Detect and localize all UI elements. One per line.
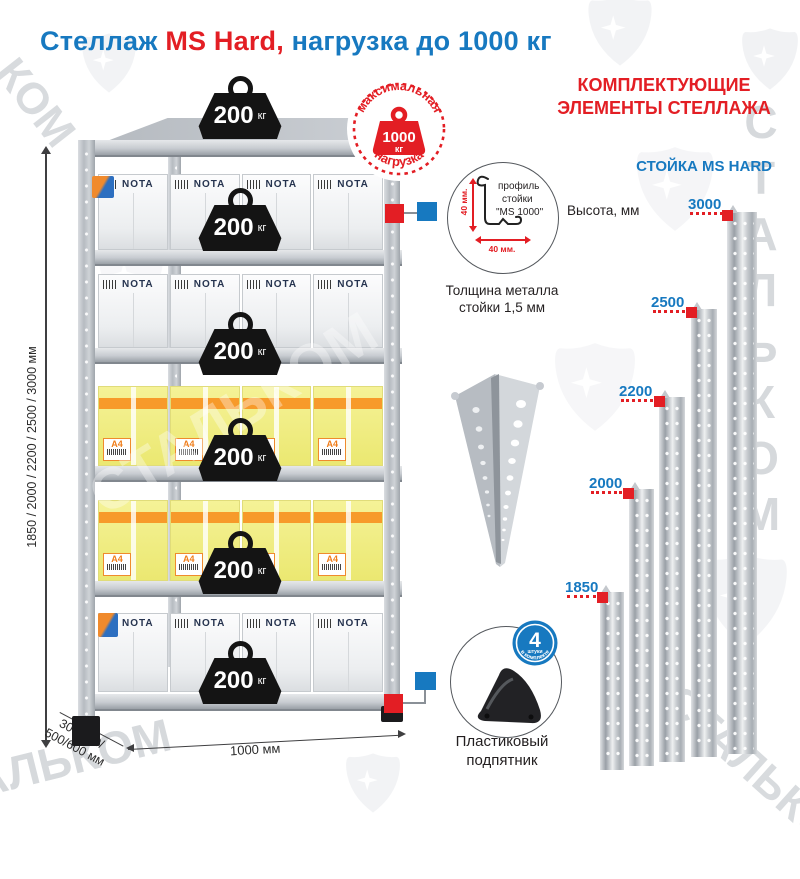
paper-box: NOTA: [313, 274, 383, 348]
post-marker-3000: [722, 210, 733, 221]
shield-watermark-icon: [634, 140, 716, 238]
box-brand-label: NOTA: [266, 279, 298, 290]
profile-caption-line1: профиль: [498, 181, 539, 192]
profile-thickness-caption: Толщина металла стойки 1,5 мм: [432, 282, 572, 316]
paper-box: NOTA: [98, 274, 168, 348]
box-brand-label: NOTA: [122, 279, 154, 290]
barcode-icon: [175, 180, 190, 189]
stand-post-2200: [659, 397, 685, 762]
page-title: Стеллаж MS Hard, нагрузка до 1000 кг: [40, 26, 552, 57]
barcode-icon: [322, 449, 342, 455]
callout-marker-blue-bottom: [415, 672, 436, 690]
box-brand-label: NOTA: [194, 279, 226, 290]
arrow-left-icon: [126, 744, 134, 752]
post-marker-2000: [623, 488, 634, 499]
a4-label: A4: [318, 553, 346, 576]
height-dimension-label: 1850 / 2000 / 2200 / 2500 / 3000 мм: [25, 297, 39, 597]
strap: [131, 387, 136, 465]
arrow-down-icon: [469, 226, 477, 232]
dotted-leader-3000: [690, 212, 723, 215]
count-badge: 4 штуки в комплекте: [512, 620, 558, 666]
paper-box: NOTA: [313, 174, 383, 250]
dotted-leader-1850: [567, 595, 596, 598]
weight-200kg: 200кг: [196, 531, 284, 594]
stand-post-1850: [600, 592, 624, 770]
barcode-icon: [318, 280, 333, 289]
callout-line-bottom-v: [424, 690, 426, 704]
watermark-kom-topleft: КОМ: [0, 49, 85, 157]
arrow-up-icon: [469, 178, 477, 184]
profile-dim-horizontal-label: 40 мм.: [482, 244, 522, 254]
post-3d-image: [443, 348, 558, 573]
a4-label: A4: [318, 438, 346, 461]
rack-post-front-right: [384, 138, 400, 712]
profile-caption-line2: стойки: [502, 194, 533, 205]
box-brand-label: NOTA: [122, 179, 154, 190]
arrow-right-icon: [525, 236, 531, 244]
callout-line-top: [403, 212, 418, 214]
barcode-icon: [107, 564, 127, 570]
box-brand-label: NOTA: [266, 618, 298, 629]
height-axis-label: Высота, мм: [567, 203, 639, 218]
stand-post-2500: [691, 309, 717, 757]
profile-caption-line3: "MS 1000": [496, 207, 543, 218]
title-part-1: Стеллаж: [40, 26, 158, 56]
profile-dim-vertical-arrow: [472, 181, 474, 227]
arrow-up-icon: [41, 146, 51, 154]
paper-pack-yellow: A4: [98, 500, 168, 581]
barcode-icon: [175, 280, 190, 289]
post-height-label-2000: 2000: [589, 475, 622, 492]
rack-post-front-left: [78, 140, 95, 742]
callout-line-bottom-h: [403, 702, 426, 704]
max-load-badge: максимальная нагрузка 1000 кг: [346, 76, 452, 182]
shield-watermark-icon: [344, 748, 402, 818]
strap: [131, 501, 136, 580]
dotted-leader-2500: [653, 310, 685, 313]
paper-box: NOTA: [313, 613, 383, 692]
arrow-left-icon: [475, 236, 481, 244]
weight-200kg: 200кг: [196, 188, 284, 251]
callout-marker-red-top: [385, 204, 404, 223]
count-badge-word: штуки: [527, 649, 542, 655]
badge-unit: кг: [395, 144, 404, 154]
box-brand-label: NOTA: [337, 618, 369, 629]
dotted-leader-2200: [621, 399, 653, 402]
box-brand-label: NOTA: [337, 279, 369, 290]
strap: [346, 501, 351, 580]
post-marker-1850: [597, 592, 608, 603]
profile-detail-circle: 40 мм. профиль стойки "MS 1000" 40 мм.: [447, 162, 559, 274]
title-part-2: MS Hard,: [165, 26, 284, 56]
arrow-right-icon: [398, 730, 406, 738]
a4-label: A4: [103, 438, 131, 461]
barcode-icon: [322, 564, 342, 570]
weight-200kg: 200кг: [196, 312, 284, 375]
stand-post-3000: [727, 212, 757, 754]
post-marker-2200: [654, 396, 665, 407]
post-marker-2500: [686, 307, 697, 318]
width-dimension-label: 1000 мм: [230, 741, 281, 759]
post-height-label-1850: 1850: [565, 579, 598, 596]
height-dimension-line: [45, 150, 47, 744]
paper-pack-yellow: A4: [98, 386, 168, 466]
box-side-sticker: [92, 176, 114, 198]
profile-dim-vertical-label: 40 мм.: [459, 182, 469, 222]
barcode-icon: [247, 280, 262, 289]
rack-foot-left: [72, 716, 100, 746]
box-side-sticker: [98, 613, 118, 637]
barcode-icon: [103, 280, 118, 289]
profile-dim-horizontal-arrow: [478, 239, 526, 241]
stand-subheading: СТОЙКА MS HARD: [600, 158, 772, 175]
stand-post-2000: [629, 489, 654, 766]
foot-caption: Пластиковый подпятник: [432, 732, 572, 770]
barcode-icon: [318, 619, 333, 628]
weight-200kg: 200кг: [196, 641, 284, 704]
dotted-leader-2000: [591, 491, 622, 494]
callout-marker-red-bottom: [384, 694, 403, 713]
title-part-3: нагрузка до 1000 кг: [292, 26, 552, 56]
barcode-icon: [247, 619, 262, 628]
post-height-label-2500: 2500: [651, 294, 684, 311]
weight-200kg: 200кг: [196, 418, 284, 481]
barcode-icon: [175, 619, 190, 628]
post-height-label-2200: 2200: [619, 383, 652, 400]
a4-label: A4: [103, 553, 131, 576]
box-brand-label: NOTA: [194, 618, 226, 629]
barcode-icon: [107, 449, 127, 455]
shield-watermark-icon: [586, 0, 654, 72]
paper-pack-yellow: A4: [313, 386, 383, 466]
callout-marker-blue-top: [417, 202, 437, 221]
weight-200kg: 200кг: [196, 76, 284, 139]
components-heading: КОМПЛЕКТУЮЩИЕ ЭЛЕМЕНТЫ СТЕЛЛАЖА: [540, 74, 788, 120]
barcode-icon: [318, 180, 333, 189]
paper-pack-yellow: A4: [313, 500, 383, 581]
box-brand-label: NOTA: [122, 618, 154, 629]
shelf-edge-2: [84, 250, 402, 266]
strap: [346, 387, 351, 465]
post-height-label-3000: 3000: [688, 196, 721, 213]
